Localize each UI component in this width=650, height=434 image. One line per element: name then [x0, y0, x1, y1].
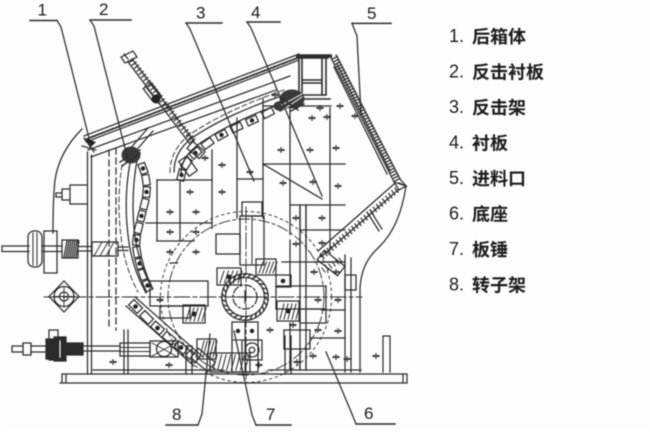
svg-text:5: 5 — [367, 4, 376, 23]
svg-text:7.: 7. — [449, 239, 464, 259]
svg-text:6: 6 — [364, 404, 373, 423]
svg-text:3.: 3. — [449, 97, 464, 117]
svg-text:2.: 2. — [449, 62, 464, 82]
svg-text:7: 7 — [266, 405, 275, 424]
svg-text:1: 1 — [38, 1, 47, 20]
svg-text:8.: 8. — [449, 275, 464, 295]
svg-text:3: 3 — [196, 4, 205, 23]
svg-text:5.: 5. — [449, 168, 464, 188]
svg-text:4.: 4. — [449, 133, 464, 153]
svg-text:6.: 6. — [449, 204, 464, 224]
svg-text:1.: 1. — [449, 26, 464, 46]
svg-text:4: 4 — [251, 3, 260, 22]
svg-text:2: 2 — [99, 0, 108, 19]
svg-text:8: 8 — [172, 405, 181, 424]
